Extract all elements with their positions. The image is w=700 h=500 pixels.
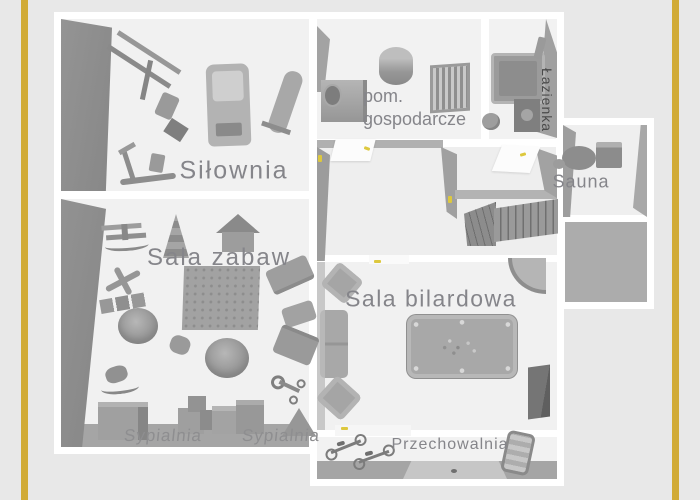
rocking-horse-icon: [99, 362, 142, 396]
round-table-icon: [562, 146, 596, 170]
floorplan-render: Siłownia pom. gospodarcze Łazienka Sauna…: [0, 0, 700, 500]
bean-bag-icon: [205, 338, 249, 378]
door-handle-icon: [341, 427, 348, 430]
room-label-utility: pom. gospodarcze: [363, 85, 466, 131]
bean-bag-icon: [118, 308, 158, 344]
stool-icon: [553, 159, 565, 169]
room-label-bedroom-right: Sypialnia: [241, 426, 321, 446]
elliptical-trainer-icon: [116, 144, 180, 190]
sink-icon: [323, 84, 342, 107]
room-label-gym: Siłownia: [179, 157, 288, 186]
tall-cabinet-icon: [528, 364, 550, 419]
rocking-biplane-icon: [101, 218, 151, 251]
terrace-area: [558, 215, 654, 309]
door-handle-icon: [374, 260, 381, 263]
washbasin-icon: [514, 99, 540, 132]
room-label-billiard: Sala bilardowa: [345, 286, 517, 313]
pool-table-icon: [407, 315, 517, 378]
door-handle-icon: [448, 196, 452, 203]
treadmill-icon: [206, 63, 252, 146]
room-label-utility-line1: pom.: [363, 85, 466, 108]
door-handle-icon: [318, 155, 322, 162]
door-knob-icon: [451, 469, 457, 473]
stair-winder-steps: [464, 200, 496, 246]
room-label-playroom: Sala zabaw: [147, 244, 291, 272]
shower-icon: [491, 53, 545, 104]
room-label-storage: Przechowalnia: [391, 436, 508, 454]
left-accent-stripe: [21, 0, 28, 500]
play-rug-icon: [182, 266, 260, 330]
stair-treads: [494, 196, 558, 244]
room-label-bedroom-left: Sypialnia: [123, 426, 203, 446]
room-label-utility-line2: gospodarcze: [363, 108, 466, 131]
sofa-icon: [320, 310, 348, 378]
right-accent-stripe: [672, 0, 679, 500]
toilet-icon: [482, 113, 500, 130]
multi-gym-machine-icon: [100, 42, 192, 138]
cabinet-icon: [596, 142, 622, 168]
water-heater-icon: [379, 47, 413, 85]
room-label-bathroom: Łazienka: [539, 68, 555, 132]
room-label-sauna: Sauna: [552, 172, 609, 193]
staircase-icon: [464, 196, 558, 246]
